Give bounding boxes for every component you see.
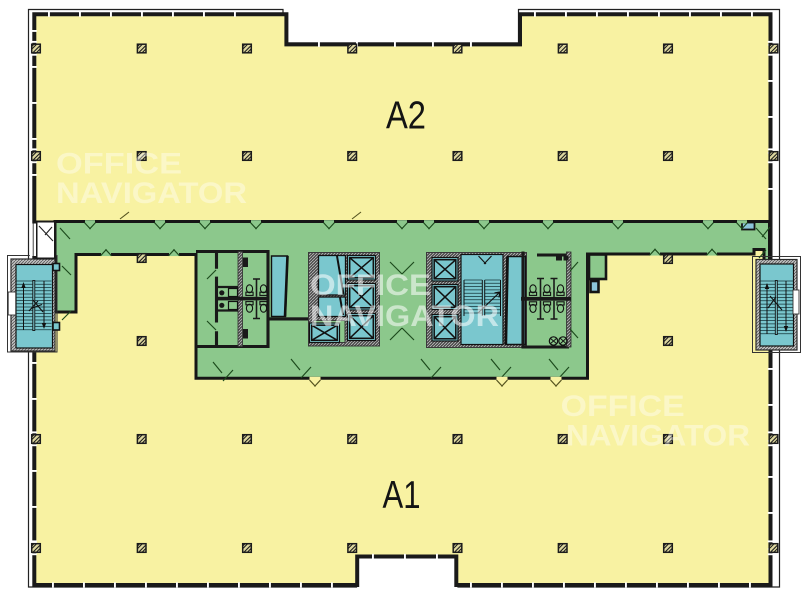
svg-text:OFFICE: OFFICE	[56, 148, 182, 181]
svg-text:OFFICE: OFFICE	[561, 390, 685, 423]
svg-text:A1: A1	[383, 474, 421, 517]
svg-text:A2: A2	[386, 95, 426, 138]
svg-text:NAVIGATOR: NAVIGATOR	[566, 420, 750, 453]
svg-text:OFFICE: OFFICE	[310, 269, 431, 302]
svg-text:NAVIGATOR: NAVIGATOR	[56, 177, 247, 210]
svg-text:NAVIGATOR: NAVIGATOR	[310, 300, 499, 333]
